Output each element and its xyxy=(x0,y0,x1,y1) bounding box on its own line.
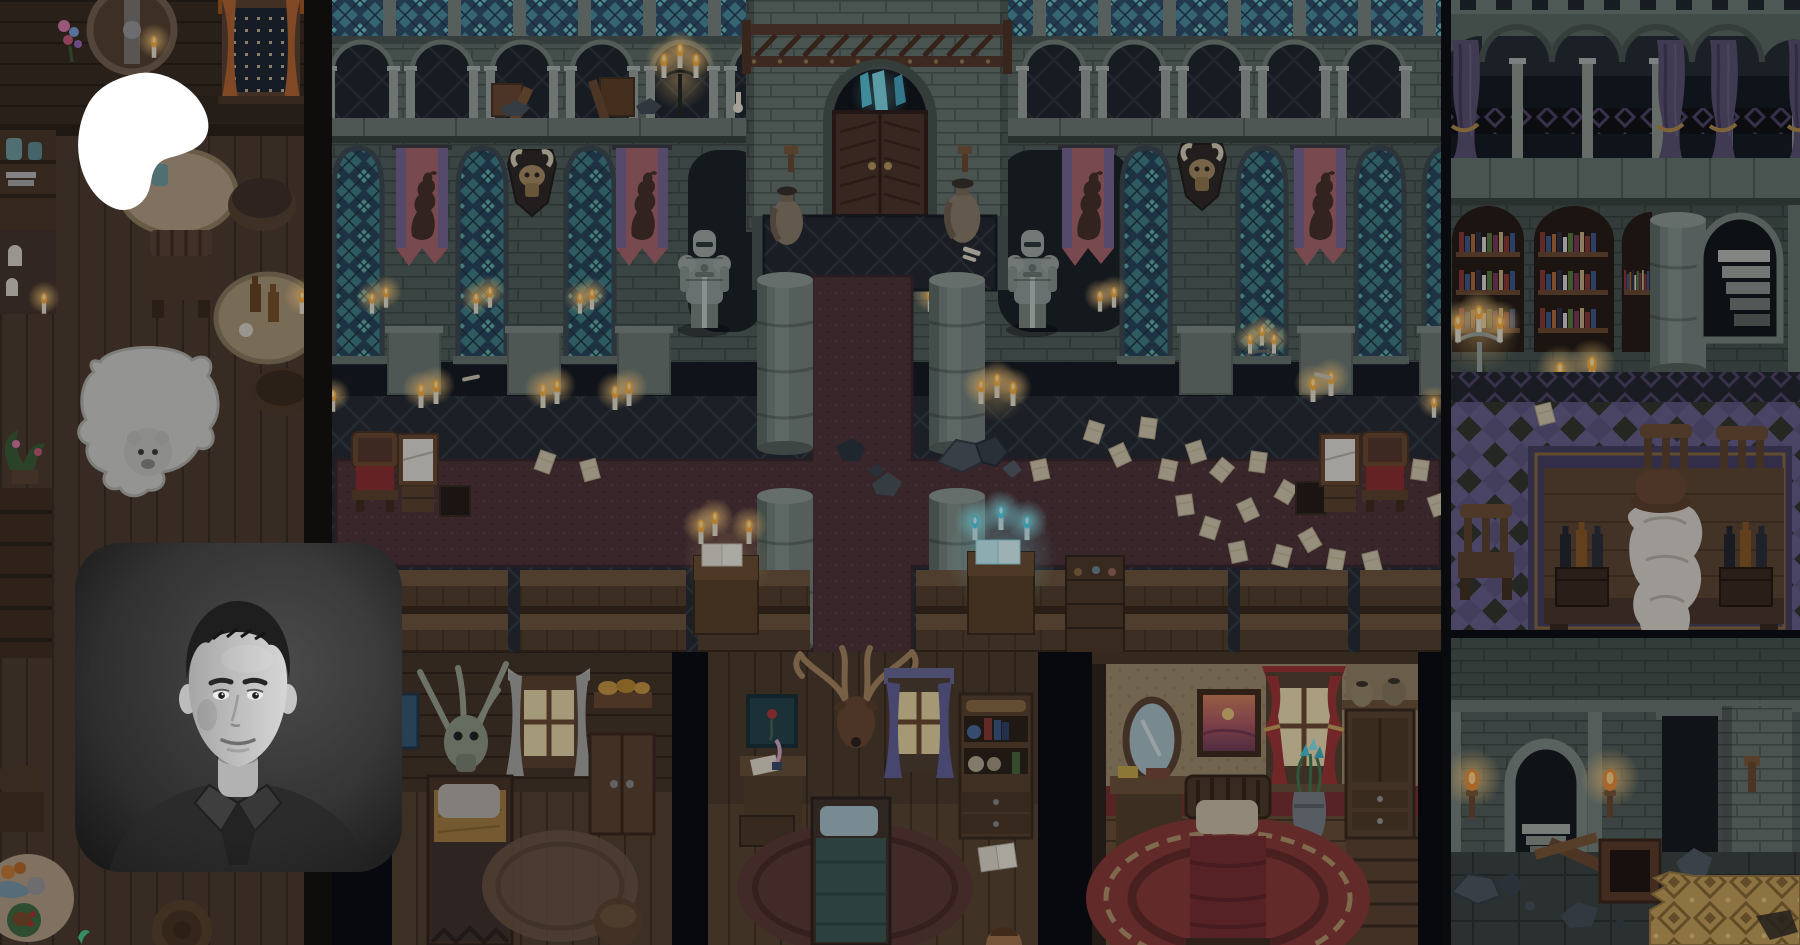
patreon-page-header xyxy=(0,0,1800,945)
patreon-logo-icon xyxy=(77,72,210,217)
creator-avatar[interactable] xyxy=(75,543,402,872)
creator-portrait xyxy=(75,543,402,872)
patreon-logo[interactable] xyxy=(77,72,210,217)
